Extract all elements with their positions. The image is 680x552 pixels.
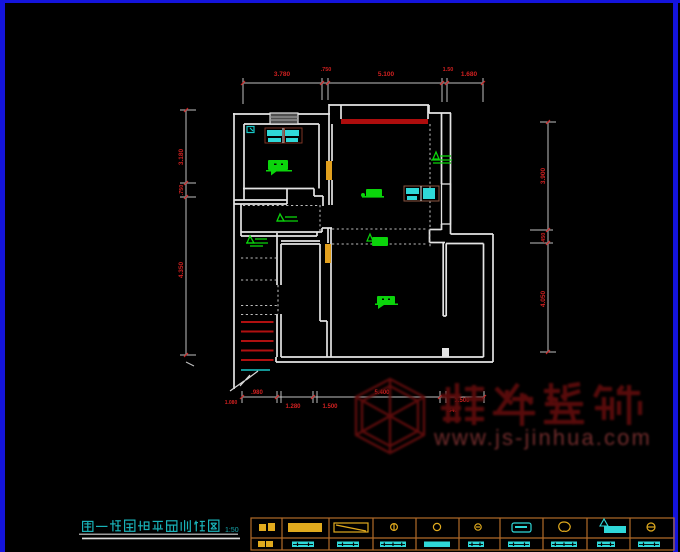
svg-text:3.780: 3.780 (274, 71, 291, 78)
svg-text:.750: .750 (179, 185, 185, 196)
svg-text:www.js-jinhua.com: www.js-jinhua.com (433, 425, 652, 450)
svg-text:1.680: 1.680 (461, 71, 478, 78)
svg-text:5.100: 5.100 (378, 71, 395, 78)
svg-text:1.280: 1.280 (285, 404, 301, 410)
svg-text:4.050: 4.050 (540, 290, 547, 307)
svg-text:1.50: 1.50 (443, 67, 454, 73)
svg-text:.750: .750 (321, 67, 332, 73)
svg-text:3.900: 3.900 (540, 167, 547, 184)
svg-text:3.180: 3.180 (178, 148, 185, 165)
svg-text:1:50: 1:50 (225, 527, 239, 534)
svg-text:4.350: 4.350 (178, 261, 185, 278)
svg-text:.450: .450 (541, 233, 547, 244)
svg-text:.980: .980 (251, 390, 263, 396)
svg-text:1.500: 1.500 (322, 404, 338, 410)
svg-text:1.080: 1.080 (225, 400, 238, 406)
